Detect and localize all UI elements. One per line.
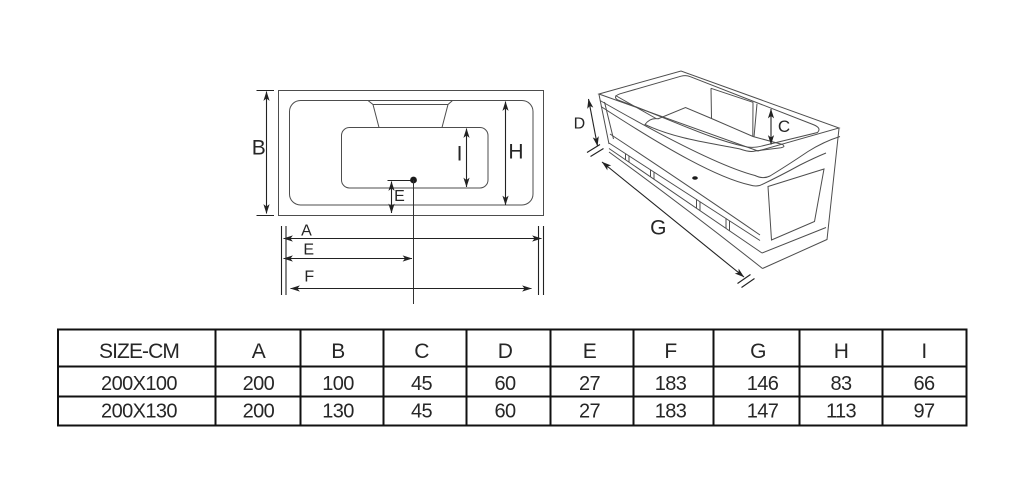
svg-text:F: F	[664, 340, 676, 363]
svg-text:113: 113	[826, 401, 857, 423]
svg-text:97: 97	[913, 401, 935, 423]
svg-text:A: A	[252, 340, 266, 363]
svg-text:A: A	[301, 223, 312, 240]
svg-text:SIZE-CM: SIZE-CM	[99, 340, 179, 363]
svg-text:27: 27	[579, 373, 601, 395]
svg-text:E: E	[394, 188, 405, 205]
svg-text:D: D	[574, 116, 586, 133]
svg-text:100: 100	[322, 373, 354, 395]
svg-text:83: 83	[830, 373, 852, 395]
svg-text:I: I	[457, 143, 463, 166]
svg-text:147: 147	[747, 401, 779, 423]
svg-text:66: 66	[913, 373, 935, 395]
svg-text:G: G	[650, 217, 666, 240]
svg-text:H: H	[834, 340, 849, 363]
svg-text:200: 200	[243, 373, 275, 395]
svg-text:60: 60	[494, 401, 516, 423]
svg-text:F: F	[304, 269, 314, 286]
svg-text:45: 45	[411, 373, 433, 395]
svg-text:B: B	[331, 340, 344, 363]
svg-text:C: C	[414, 340, 429, 363]
svg-text:G: G	[750, 340, 766, 363]
svg-text:B: B	[252, 137, 266, 160]
svg-text:45: 45	[411, 401, 433, 423]
svg-text:183: 183	[655, 373, 687, 395]
svg-text:130: 130	[322, 401, 354, 423]
svg-text:D: D	[498, 340, 513, 363]
svg-text:E: E	[583, 340, 597, 363]
svg-text:C: C	[778, 117, 790, 136]
svg-text:200: 200	[243, 401, 275, 423]
svg-text:200X130: 200X130	[101, 401, 177, 423]
svg-text:60: 60	[494, 373, 516, 395]
svg-text:H: H	[508, 141, 523, 164]
svg-text:27: 27	[579, 401, 601, 423]
svg-text:146: 146	[747, 373, 779, 395]
svg-text:200X100: 200X100	[101, 373, 177, 395]
svg-text:I: I	[921, 340, 926, 363]
svg-text:183: 183	[655, 401, 687, 423]
svg-text:E: E	[303, 242, 314, 259]
